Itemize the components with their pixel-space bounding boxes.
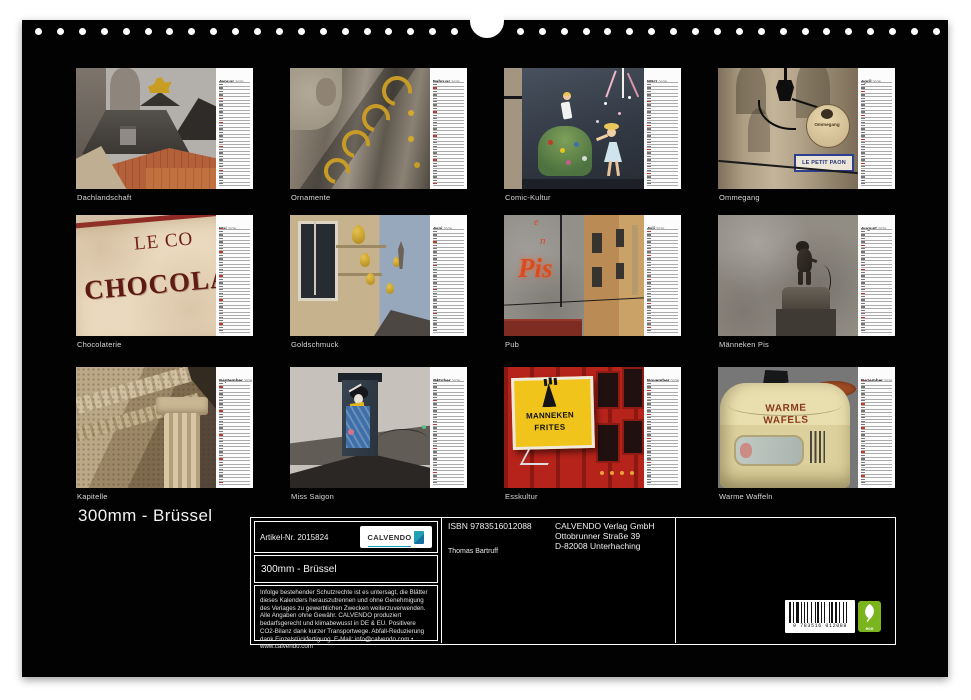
girl-hair xyxy=(604,123,619,130)
binding-hole xyxy=(823,28,830,35)
stone-facade-edge xyxy=(504,68,522,189)
girl-leg-2 xyxy=(615,161,620,176)
month-cell-november: MANNEKEN FRITES November2026 Esskultur xyxy=(504,367,681,502)
photo-ornamente xyxy=(290,68,430,189)
girl-dress xyxy=(604,142,622,162)
fluted-column xyxy=(164,413,200,488)
gold-studs xyxy=(408,110,414,116)
binding-hole xyxy=(101,28,108,35)
month-cell-august: August2026 Männeken Pis xyxy=(718,215,895,350)
photo-pub: e n Pis xyxy=(504,215,644,336)
day-line xyxy=(861,330,892,333)
photo-dachlandschaft xyxy=(76,68,216,189)
firework-streak-2 xyxy=(622,68,624,98)
calendar-strip: Dezember2026 xyxy=(858,367,895,488)
day-lines xyxy=(861,227,892,333)
leaf-icon xyxy=(862,603,877,623)
binding-hole xyxy=(517,28,524,35)
string-light-bulb xyxy=(422,425,426,429)
calendar-strip: August2026 xyxy=(858,215,895,336)
barcode-digits: 9 783516 012088 xyxy=(785,623,855,629)
statue-pedestal-roof xyxy=(140,92,180,106)
firework-streak-3 xyxy=(627,73,639,98)
binding-hole xyxy=(451,28,458,35)
photo-comic-kultur xyxy=(504,68,644,189)
boy-white-suit xyxy=(561,101,573,119)
mural-bottom-band xyxy=(522,179,644,189)
calendar-strip: Mai2026 xyxy=(216,215,253,336)
photo-caption: Chocolaterie xyxy=(77,340,122,349)
day-lines xyxy=(433,80,464,186)
van-text-line2: WAFELS xyxy=(748,414,824,426)
day-lines xyxy=(861,80,892,186)
neon-letter-small-1: e xyxy=(534,217,538,228)
girl-leg-1 xyxy=(607,161,612,176)
day-lines xyxy=(861,379,892,485)
isbn-number: ISBN 9783516012088 xyxy=(448,521,532,531)
day-line xyxy=(861,183,892,186)
statue-leg-1 xyxy=(798,271,803,285)
cornice-1 xyxy=(336,245,386,248)
photo-caption: Miss Saigon xyxy=(291,492,334,501)
blurred-tower xyxy=(110,68,140,116)
comic-figures-dots xyxy=(548,140,553,145)
binding-hole xyxy=(626,28,633,35)
day-lines xyxy=(219,379,250,485)
binding-hole xyxy=(276,28,283,35)
binding-hole xyxy=(298,28,305,35)
binding-hole xyxy=(911,28,918,35)
binding-hole xyxy=(407,28,414,35)
flower-pile xyxy=(538,126,592,176)
photo-esskultur: MANNEKEN FRITES xyxy=(504,367,644,488)
pedestal xyxy=(782,287,830,309)
month-cell-juni: Juni2026 Goldschmuck xyxy=(290,215,467,350)
barcode: 9 783516 012088 xyxy=(785,600,855,633)
gold-ornament-1 xyxy=(352,225,365,244)
door-glass-3 xyxy=(596,423,620,463)
info-table-divider-1 xyxy=(441,517,442,643)
photo-miss-saigon xyxy=(290,367,430,488)
balcony xyxy=(504,96,522,99)
binding-hole xyxy=(758,28,765,35)
photo-caption: Esskultur xyxy=(505,492,538,501)
binding-hole xyxy=(35,28,42,35)
photo-maenneken-pis xyxy=(718,215,858,336)
calendar-strip: September2026 xyxy=(216,367,253,488)
barcode-bars xyxy=(789,602,851,623)
calvendo-logo: CALVENDO xyxy=(360,526,432,548)
window-reflection xyxy=(740,443,752,458)
day-lines xyxy=(219,80,250,186)
dormer-window xyxy=(120,126,136,145)
sign-bracket xyxy=(520,449,557,465)
product-title-box: 300mm - Brüssel xyxy=(254,555,438,583)
calendar-title: 300mm - Brüssel xyxy=(78,506,212,526)
engine-vents xyxy=(810,431,825,463)
statue-leg-2 xyxy=(806,271,811,285)
day-lines xyxy=(647,379,678,485)
eco-label: eco xyxy=(858,626,881,631)
window-4 xyxy=(616,263,624,279)
publisher-address: CALVENDO Verlag GmbH Ottobrunner Straße … xyxy=(555,521,655,551)
binding-hole xyxy=(364,28,371,35)
binding-hole xyxy=(714,28,721,35)
photo-caption: Warme Waffeln xyxy=(719,492,773,501)
calendar-strip: Januar2026 xyxy=(216,68,253,189)
binding-hole xyxy=(123,28,130,35)
binding-hole xyxy=(802,28,809,35)
calendar-strip: März2026 xyxy=(644,68,681,189)
day-line xyxy=(861,482,892,485)
pink-accent xyxy=(348,429,354,435)
round-sign-text: Ommegang xyxy=(806,122,848,127)
month-cell-september: September2026 Kapitelle xyxy=(76,367,253,502)
eco-logo: eco xyxy=(858,601,881,632)
calvendo-flag-icon xyxy=(414,531,424,544)
day-line xyxy=(219,183,250,186)
day-line xyxy=(647,482,678,485)
publisher-line: CALVENDO Verlag GmbH xyxy=(555,521,655,531)
binding-hole xyxy=(736,28,743,35)
neon-sign-pis: Pis xyxy=(518,253,553,284)
photo-caption: Goldschmuck xyxy=(291,340,339,349)
binding-hole xyxy=(210,28,217,35)
month-cell-mai: LE CO CHOCOLA Mai2026 Chocolaterie xyxy=(76,215,253,350)
product-screenshot: Januar2026 Dachlandschaft Februar2026 O xyxy=(0,0,971,700)
day-line xyxy=(433,330,464,333)
girl-arm xyxy=(596,134,608,141)
binding-hole xyxy=(254,28,261,35)
van-text-line1: WARME xyxy=(748,402,824,414)
calendar-strip: Juli2026 xyxy=(644,215,681,336)
publisher-line: D-82008 Unterhaching xyxy=(555,541,655,551)
photo-goldschmuck xyxy=(290,215,430,336)
product-title: 300mm - Brüssel xyxy=(255,556,437,582)
calendar-strip: April2026 xyxy=(858,68,895,189)
golden-statue xyxy=(148,77,172,93)
binding-hole xyxy=(889,28,896,35)
weathering-overlay xyxy=(76,215,216,336)
gold-ornament-3 xyxy=(366,273,375,285)
calvendo-tagline-bar xyxy=(368,546,412,548)
day-lines xyxy=(647,227,678,333)
door-glass-2 xyxy=(622,367,644,409)
photo-caption: Ommegang xyxy=(719,193,760,202)
photo-caption: Pub xyxy=(505,340,519,349)
photo-ommegang: Ommegang LE PETIT PAON xyxy=(718,68,858,189)
binding-hole xyxy=(604,28,611,35)
neon-letter-small-2: n xyxy=(540,235,546,247)
boy-head xyxy=(563,92,571,100)
author-name: Thomas Bartruff xyxy=(448,548,498,555)
binding-hole xyxy=(561,28,568,35)
month-cell-juli: e n Pis Juli2026 Pub xyxy=(504,215,681,350)
calendar-strip: Oktober2026 xyxy=(430,367,467,488)
sign-text-line1: MANNEKEN xyxy=(514,410,586,421)
light-string-wire xyxy=(378,429,428,450)
sign-support-pole xyxy=(560,215,562,307)
day-lines xyxy=(433,379,464,485)
binding-hole xyxy=(166,28,173,35)
window-3 xyxy=(592,267,602,287)
gold-ornament-4 xyxy=(386,283,394,294)
calendar-strip: Februar2026 xyxy=(430,68,467,189)
photo-kapitelle xyxy=(76,367,216,488)
blue-kimono xyxy=(346,406,370,448)
window xyxy=(298,221,338,301)
binding-hole xyxy=(867,28,874,35)
legal-text: Infolge bestehender Schutzrechte ist es … xyxy=(255,586,437,654)
calendar-strip: November2026 xyxy=(644,367,681,488)
window-2 xyxy=(616,229,624,247)
day-line xyxy=(647,330,678,333)
photo-caption: Männeken Pis xyxy=(719,340,769,349)
photo-caption: Comic-Kultur xyxy=(505,193,551,202)
month-cell-februar: Februar2026 Ornamente xyxy=(290,68,467,203)
photo-chocolaterie: LE CO CHOCOLA xyxy=(76,215,216,336)
calvendo-wordmark: CALVENDO xyxy=(368,527,412,548)
binding-hole xyxy=(57,28,64,35)
day-line xyxy=(219,482,250,485)
round-sign-emblem xyxy=(821,109,833,119)
gold-ornament-2 xyxy=(360,253,370,267)
day-line xyxy=(219,330,250,333)
binding-hole xyxy=(385,28,392,35)
month-cell-maerz: März2026 Comic-Kultur xyxy=(504,68,681,203)
sign-text-line2: FRITES xyxy=(514,422,586,433)
sparkles xyxy=(604,102,607,105)
binding-hole xyxy=(780,28,787,35)
info-table-divider-2 xyxy=(675,517,676,643)
binding-hole xyxy=(670,28,677,35)
day-lines xyxy=(647,80,678,186)
month-cell-oktober: Oktober2026 Miss Saigon xyxy=(290,367,467,502)
red-ledge xyxy=(504,319,582,336)
cornice-2 xyxy=(338,273,382,276)
binding-hole xyxy=(692,28,699,35)
binding-hole xyxy=(342,28,349,35)
string-lights xyxy=(600,471,604,475)
firework-streak-1 xyxy=(605,71,616,98)
binding-hole xyxy=(320,28,327,35)
day-line xyxy=(647,183,678,186)
slate-roof-corner xyxy=(374,310,430,336)
binding-hole xyxy=(79,28,86,35)
binding-hole xyxy=(232,28,239,35)
door-glass-1 xyxy=(596,371,620,409)
month-cell-januar: Januar2026 Dachlandschaft xyxy=(76,68,253,203)
legal-box: Infolge bestehender Schutzrechte ist es … xyxy=(254,585,438,641)
building-edge xyxy=(632,225,638,295)
photo-caption: Kapitelle xyxy=(77,492,108,501)
binding-hole xyxy=(188,28,195,35)
photo-warme-waffeln: WARME WAFELS xyxy=(718,367,858,488)
binding-hole xyxy=(845,28,852,35)
binding-hole xyxy=(648,28,655,35)
door-glass-4 xyxy=(622,419,644,455)
photo-caption: Ornamente xyxy=(291,193,330,202)
window-1 xyxy=(592,233,602,253)
article-number: Artikel-Nr. 2015824 xyxy=(260,533,328,542)
day-lines xyxy=(433,227,464,333)
tile-roof-front xyxy=(146,168,216,189)
hanging-notch xyxy=(470,4,504,38)
month-cell-dezember: WARME WAFELS Dezember2026 Warme Waffeln xyxy=(718,367,895,502)
photo-caption: Dachlandschaft xyxy=(77,193,132,202)
binding-hole xyxy=(583,28,590,35)
month-cell-april: Ommegang LE PETIT PAON April2026 Ommegan… xyxy=(718,68,895,203)
window-mullion xyxy=(314,221,316,295)
pedestal-base xyxy=(776,309,836,336)
binding-hole xyxy=(933,28,940,35)
lamp-pole xyxy=(784,68,787,82)
binding-hole xyxy=(145,28,152,35)
binding-hole xyxy=(539,28,546,35)
day-lines xyxy=(219,227,250,333)
binding-hole xyxy=(429,28,436,35)
calendar-strip: Juni2026 xyxy=(430,215,467,336)
article-number-box: Artikel-Nr. 2015824 CALVENDO xyxy=(254,521,438,553)
day-line xyxy=(433,183,464,186)
publisher-line: Ottobrunner Straße 39 xyxy=(555,531,655,541)
day-line xyxy=(433,482,464,485)
